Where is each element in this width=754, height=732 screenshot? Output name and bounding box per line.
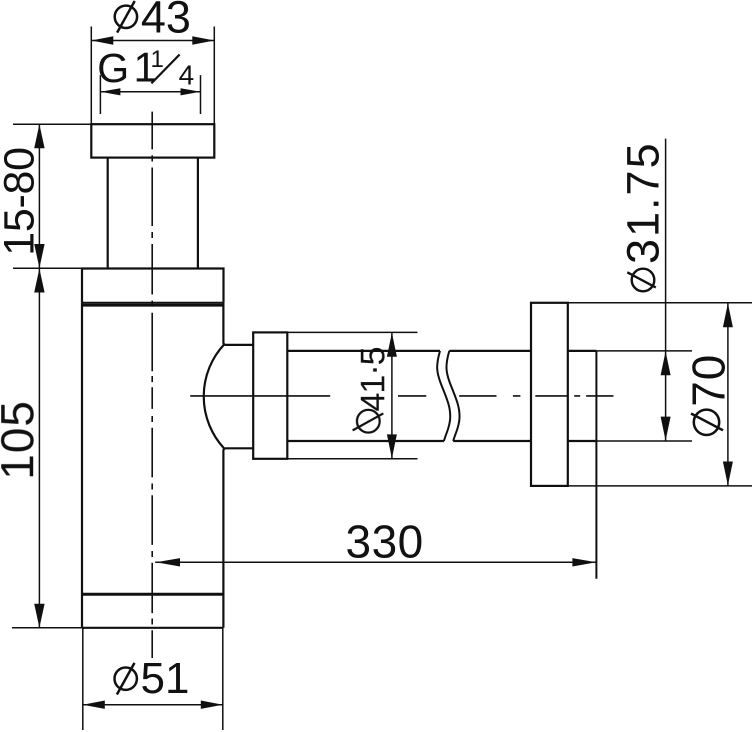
- svg-text:70: 70: [683, 354, 735, 407]
- svg-text:105: 105: [0, 400, 43, 480]
- svg-text:15-80: 15-80: [0, 147, 44, 255]
- svg-text:41·5: 41·5: [354, 347, 392, 411]
- svg-text:1: 1: [151, 46, 164, 73]
- svg-text:G: G: [97, 45, 129, 91]
- svg-text:330: 330: [346, 516, 424, 568]
- svg-text:31.75: 31.75: [618, 141, 669, 264]
- svg-text:51: 51: [141, 654, 190, 703]
- svg-text:4: 4: [179, 60, 195, 91]
- svg-text:43: 43: [141, 0, 191, 43]
